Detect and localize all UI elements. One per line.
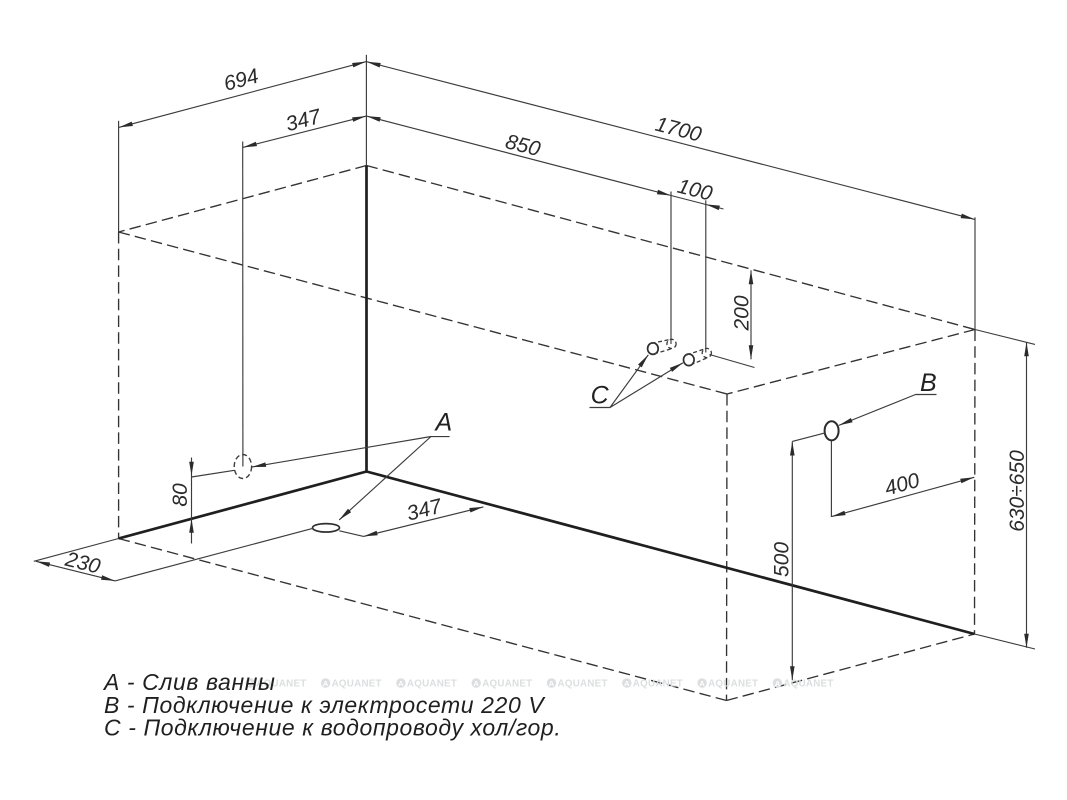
svg-text:500: 500 [771, 542, 794, 577]
svg-text:630÷650: 630÷650 [1006, 450, 1029, 532]
svg-text:AQUANET: AQUANET [558, 679, 608, 690]
svg-text:347: 347 [404, 494, 445, 525]
svg-text:AQUANET: AQUANET [332, 679, 382, 690]
svg-text:A: A [549, 679, 555, 688]
svg-text:С - Подключение к водопроводу: С - Подключение к водопроводу хол/гор. [104, 715, 561, 741]
svg-text:347: 347 [283, 105, 324, 136]
svg-text:A: A [323, 679, 329, 688]
svg-text:A: A [398, 679, 404, 688]
svg-text:100: 100 [675, 175, 715, 206]
svg-text:A: A [624, 679, 630, 688]
svg-text:C: C [591, 382, 610, 410]
svg-text:A: A [433, 409, 452, 437]
svg-text:A: A [775, 679, 781, 688]
svg-text:1700: 1700 [653, 113, 704, 147]
svg-text:200: 200 [731, 295, 754, 331]
svg-text:400: 400 [882, 469, 922, 501]
svg-text:850: 850 [503, 130, 543, 161]
svg-text:B: B [920, 369, 937, 397]
svg-text:AQUANET: AQUANET [633, 679, 683, 690]
svg-text:А - Слив ванны: А - Слив ванны [102, 669, 275, 695]
svg-text:AQUANET: AQUANET [482, 679, 532, 690]
svg-text:AQUANET: AQUANET [708, 679, 758, 690]
svg-text:AQUANET: AQUANET [407, 679, 457, 690]
svg-text:AQUANET: AQUANET [783, 679, 833, 690]
svg-text:A: A [699, 679, 705, 688]
svg-text:A: A [473, 679, 479, 688]
svg-text:80: 80 [169, 483, 192, 507]
svg-text:230: 230 [62, 548, 103, 579]
